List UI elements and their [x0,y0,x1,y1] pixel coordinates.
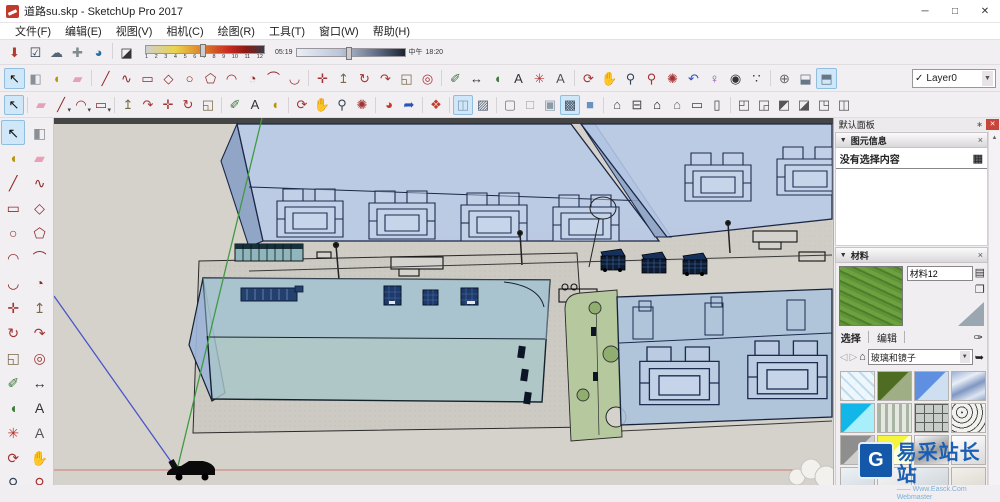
model-checkbox-icon[interactable]: ☑ [25,42,46,63]
solid-split-icon[interactable]: ◫ [834,95,854,115]
zoom-extents-icon[interactable]: ✺ [662,68,683,89]
make-component-icon[interactable]: ◧ [28,120,52,145]
model-viewport[interactable] [54,118,833,485]
home-icon[interactable]: ⌂ [859,351,866,363]
look-around-icon[interactable]: ◉ [725,68,746,89]
view-top-icon[interactable]: ⊟ [627,95,647,115]
zoom-extents-icon[interactable]: ✺ [352,95,372,115]
category-dropdown[interactable]: 玻璃和镜子 ▼ [868,349,973,365]
follow-me-icon[interactable]: ↷ [138,95,158,115]
rectangle-icon[interactable]: ▭ [137,68,158,89]
swatch-glass-blocks[interactable] [914,403,949,433]
shaded-icon[interactable]: ▣ [540,95,560,115]
walk-icon[interactable]: ∵ [746,68,767,89]
swatch-glass-cyan[interactable] [840,403,875,433]
tape-measure-icon[interactable]: ✐ [1,370,25,395]
watermark-brand: 易采站长站 [897,442,1000,486]
menu-item[interactable]: 绘图(R) [211,23,262,39]
tab-separator: │ [902,332,908,343]
tab-select[interactable]: 选择 [841,330,861,345]
circle-icon[interactable]: ○ [179,68,200,89]
details-arrow-icon[interactable]: ➥ [975,351,984,364]
two-point-arc-icon[interactable]: ⌒ [28,245,52,270]
scale-icon[interactable]: ◱ [1,345,25,370]
entity-detail-icon[interactable]: ▦ [973,152,983,165]
solid-subtract-icon[interactable]: ◪ [794,95,814,115]
scale-icon[interactable]: ◱ [198,95,218,115]
maximize-button[interactable]: □ [940,0,970,22]
tape-measure-icon[interactable]: ✐ [445,68,466,89]
tray-header: 默认面板 ∗ ✕ [834,118,1000,131]
paint-bucket-icon[interactable]: ◖ [265,95,285,115]
time-start-label: 05:19 [275,49,293,56]
rectangle-icon[interactable]: ▭ [91,95,111,115]
get-models-icon[interactable]: ◕ [379,95,399,115]
title-bar: 道路su.skp - SketchUp Pro 2017 ─ □ ✕ [0,0,1000,23]
solid-union-icon[interactable]: ◩ [774,95,794,115]
horizon-strip [54,118,833,124]
market-stalls[interactable] [235,244,303,261]
polygon-icon[interactable]: ⬠ [200,68,221,89]
toolbar-main: ↖◧◖▰╱∿▭◇○⬠◠◔⌒◡✛↥↻↷◱◎✐↔◖A✳A⟳✋⚲⚲✺↶♀◉∵⊕⬓⬒ ✓… [0,65,1000,92]
close-button[interactable]: ✕ [970,0,1000,22]
axes-icon[interactable]: ✳ [1,420,25,445]
rectangle-icon[interactable]: ▭ [1,195,25,220]
rotated-rectangle-icon[interactable]: ◇ [28,195,52,220]
protractor-icon[interactable]: ◖ [1,395,25,420]
tray-close-button[interactable]: ✕ [986,119,999,130]
axes-icon[interactable]: ✳ [529,68,550,89]
viewport-canvas[interactable] [54,118,833,485]
building-foreground-right[interactable] [617,289,833,431]
large-tool-set: ↖◧◖▰╱∿▭◇○⬠◠⌒◡◔✛↥↻↷◱◎✐↔◖A✳A⟳✋⚲⚲✺↶ [0,118,54,485]
scale-icon[interactable]: ◱ [396,68,417,89]
time-end-label: 18:20 [426,49,444,56]
collapse-icon[interactable]: ▼ [840,252,847,259]
zoom-icon[interactable]: ⚲ [332,95,352,115]
layer-check: ✓ [915,73,923,84]
category-value: 玻璃和镜子 [871,351,916,364]
eraser-icon[interactable]: ▰ [31,95,51,115]
three-d-text-icon[interactable]: A [28,420,52,445]
swatch-safety-glass-lattice[interactable] [840,371,875,401]
swatch-glass-speckle[interactable] [951,403,986,433]
collapse-icon[interactable]: ▼ [840,137,847,144]
scroll-up-icon[interactable]: ▲ [992,135,998,141]
arc-icon[interactable]: ◠ [1,245,25,270]
entity-info-header[interactable]: ▼ 图元信息 × [835,132,988,148]
sketchup-logo-icon [6,5,19,18]
select-icon[interactable]: ↖ [4,95,24,115]
tape-measure-icon[interactable]: ✐ [225,95,245,115]
move-icon[interactable]: ✛ [158,95,178,115]
push-pull-icon[interactable]: ↥ [333,68,354,89]
share-model-icon[interactable]: ⬇ [4,42,25,63]
material-preview[interactable] [839,266,903,326]
materials-header[interactable]: ▼ 材料 × [835,247,988,263]
eraser-icon[interactable]: ▰ [67,68,88,89]
view-right-icon[interactable]: ▯ [707,95,727,115]
xray-mode-icon[interactable]: ◫ [453,95,473,115]
arc-icon[interactable]: ◠ [71,95,91,115]
swatch-glass-sky-reflective[interactable] [951,371,986,401]
monochrome-icon[interactable]: ■ [580,95,600,115]
watermark: G 易采站长站 —— Www.Easck.Com Webmaster [858,442,1000,502]
rotate-icon[interactable]: ↻ [178,95,198,115]
circle-icon[interactable]: ○ [1,220,25,245]
zoom-icon[interactable]: ⚲ [620,68,641,89]
entity-info-body: 没有选择内容 ▦ [835,148,988,246]
layer-value: Layer0 [926,73,957,84]
pin-icon[interactable]: ∗ [976,120,983,129]
protractor-icon[interactable]: ◖ [487,68,508,89]
entity-close-icon[interactable]: × [978,135,983,145]
view-iso-icon[interactable]: ⌂ [607,95,627,115]
push-pull-icon[interactable]: ↥ [28,295,52,320]
make-component-icon[interactable]: ◧ [25,68,46,89]
menu-item[interactable]: 窗口(W) [312,23,366,39]
default-tray: 默认面板 ∗ ✕ ▼ 图元信息 × 没有选择内容 ▦ ▼ 材料 × [833,118,1000,485]
rotate-icon[interactable]: ↻ [354,68,375,89]
materials-title: 材料 [851,249,869,262]
line-tool-icon[interactable]: ╱ [51,95,71,115]
create-material-icon[interactable]: ❐ [975,283,985,296]
extension-warehouse-icon[interactable]: ◕ [88,42,109,63]
push-pull-icon[interactable]: ↥ [118,95,138,115]
pan-icon[interactable]: ✋ [312,95,332,115]
tray-title: 默认面板 [839,118,875,131]
section-plane-icon[interactable]: ⊕ [774,68,795,89]
entity-info-title: 图元信息 [851,134,887,147]
freehand-icon[interactable]: ∿ [116,68,137,89]
materials-close-icon[interactable]: × [978,250,983,260]
menu-item[interactable]: 文件(F) [8,23,58,39]
shadow-dialog-icon[interactable]: ◪ [116,42,137,63]
line-tool-icon[interactable]: ╱ [95,68,116,89]
zoom-window-icon[interactable]: ⚲ [28,470,52,485]
paint-bucket-icon[interactable]: ◖ [46,68,67,89]
pan-icon[interactable]: ✋ [28,445,52,470]
time-gradient[interactable] [296,48,406,57]
zoom-window-icon[interactable]: ⚲ [641,68,662,89]
select-icon[interactable]: ↖ [1,120,25,145]
section-display-icon[interactable]: ⬓ [795,68,816,89]
three-point-arc-icon[interactable]: ◡ [1,270,25,295]
preview-corner-decoration [958,302,984,326]
position-camera-icon[interactable]: ♀ [704,68,725,89]
category-caret-icon[interactable]: ▼ [960,351,970,363]
panel-scrollbar[interactable]: ▲ [988,131,1000,485]
toolbar-warehouse-shadow: ⬇☑☁✚◕◪ 123456789101112 05:19 中午 18:20 [0,40,1000,65]
no-selection-text: 没有选择内容 [840,151,900,166]
back-icon[interactable]: ◁ [840,352,848,363]
menu-item[interactable]: 帮助(H) [366,23,417,39]
view-back-icon[interactable]: ⌂ [667,95,687,115]
line-tool-icon[interactable]: ╱ [1,170,25,195]
follow-me-icon[interactable]: ↷ [28,320,52,345]
menu-item[interactable]: 编辑(E) [58,23,109,39]
solid-intersect-icon[interactable]: ◲ [754,95,774,115]
menu-bar: 文件(F)编辑(E)视图(V)相机(C)绘图(R)工具(T)窗口(W)帮助(H) [0,23,1000,40]
layer-caret-icon[interactable]: ▼ [982,71,993,86]
watermark-subtitle: —— Www.Easck.Com Webmaster [897,486,1000,502]
orbit-icon[interactable]: ⟳ [1,445,25,470]
add-link-icon[interactable]: ✚ [67,42,88,63]
move-icon[interactable]: ✛ [1,295,25,320]
menu-item[interactable]: 工具(T) [262,23,312,39]
sample-paint-icon[interactable]: ✑ [974,331,983,344]
view-left-icon[interactable]: ▭ [687,95,707,115]
arc-icon[interactable]: ◠ [221,68,242,89]
materials-nav: ◁ ▷ ⌂ 玻璃和镜子 ▼ ➥ [839,347,985,367]
solid-outer-shell-icon[interactable]: ◰ [734,95,754,115]
swatch-glass-blue[interactable] [914,371,949,401]
offset-icon[interactable]: ◎ [28,345,52,370]
easck-logo-icon: G [858,442,894,479]
forward-icon[interactable]: ▷ [849,352,857,363]
rotated-rectangle-icon[interactable]: ◇ [158,68,179,89]
text-icon[interactable]: A [28,395,52,420]
materials-tabs: 选择 │ 编辑 │ ✑ [839,326,985,347]
eraser-icon[interactable]: ▰ [28,145,52,170]
time-mid-label: 中午 [409,47,423,57]
material-name-input[interactable] [907,266,973,281]
layer-dropdown[interactable]: ✓ Layer0 ▼ [912,69,996,88]
select-icon[interactable]: ↖ [4,68,25,89]
purge-model-icon[interactable]: ❖ [426,95,446,115]
toolbar-styles-views: ↖▰╱◠▭↥↷✛↻◱✐A◖⟳✋⚲✺◕➦❖◫▨▢□▣▩■⌂⊟⌂⌂▭▯◰◲◩◪◳◫ [0,92,1000,118]
zoom-previous-icon[interactable]: ↶ [683,68,704,89]
menu-item[interactable]: 相机(C) [159,23,210,39]
window-title: 道路su.skp - SketchUp Pro 2017 [24,3,183,19]
tab-edit[interactable]: 编辑 [877,330,897,345]
bus-object [241,286,303,301]
back-edges-icon[interactable]: ▨ [473,95,493,115]
minimize-button[interactable]: ─ [910,0,940,22]
pan-icon[interactable]: ✋ [599,68,620,89]
export-model-icon[interactable]: ➦ [399,95,419,115]
date-gradient[interactable] [145,45,265,54]
rotate-icon[interactable]: ↻ [1,320,25,345]
three-d-text-icon[interactable]: A [550,68,571,89]
polygon-icon[interactable]: ⬠ [28,220,52,245]
upload-cloud-icon[interactable]: ☁ [46,42,67,63]
orbit-icon[interactable]: ⟳ [578,68,599,89]
dimension-icon[interactable]: ↔ [466,68,487,89]
shaded-textures-icon[interactable]: ▩ [560,95,580,115]
wireframe-icon[interactable]: ▢ [500,95,520,115]
building-foreground-left[interactable] [189,278,550,404]
orbit-icon[interactable]: ⟳ [292,95,312,115]
hidden-line-icon[interactable]: □ [520,95,540,115]
secondary-pane-icon[interactable]: ▤ [975,266,985,279]
entity-info-section: ▼ 图元信息 × 没有选择内容 ▦ [835,132,988,246]
menu-item[interactable]: 视图(V) [109,23,160,39]
section-cut-icon[interactable]: ⬒ [816,68,837,89]
shadow-date-slider[interactable]: 123456789101112 [145,45,265,60]
text-icon[interactable]: A [245,95,265,115]
paint-bucket-icon[interactable]: ◖ [1,145,25,170]
solid-trim-icon[interactable]: ◳ [814,95,834,115]
move-icon[interactable]: ✛ [312,68,333,89]
text-icon[interactable]: A [508,68,529,89]
offset-icon[interactable]: ◎ [417,68,438,89]
view-front-icon[interactable]: ⌂ [647,95,667,115]
follow-me-icon[interactable]: ↷ [375,68,396,89]
swatch-glass-olive[interactable] [877,371,912,401]
two-point-arc-icon[interactable]: ⌒ [263,68,284,89]
tab-separator: │ [866,332,872,343]
shadow-time-slider[interactable]: 05:19 中午 18:20 [275,47,443,57]
three-point-arc-icon[interactable]: ◡ [284,68,305,89]
zoom-icon[interactable]: ⚲ [1,470,25,485]
freehand-icon[interactable]: ∿ [28,170,52,195]
pie-icon[interactable]: ◔ [242,68,263,89]
dimension-icon[interactable]: ↔ [28,370,52,395]
pie-icon[interactable]: ◔ [28,270,52,295]
swatch-glass-striped[interactable] [877,403,912,433]
